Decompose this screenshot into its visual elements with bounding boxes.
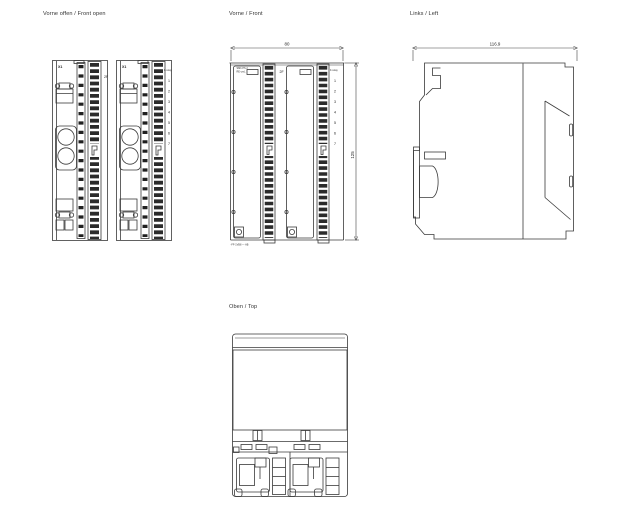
top-view-title: Oben / Top: [229, 304, 257, 310]
svg-text:2: 2: [334, 90, 336, 94]
height-dimension-label: 125: [350, 151, 355, 159]
svg-text:6: 6: [168, 132, 170, 136]
svg-text:1: 1: [334, 79, 336, 83]
vent-slot: [570, 124, 573, 136]
side-profile: [414, 63, 574, 239]
terminal-header: F-relay: [330, 69, 339, 72]
module2-connector-label: X1: [122, 65, 126, 69]
front-open-view-drawing: X1 X1 2F F-relay 1 2 3 4 5 6 7: [48, 56, 198, 246]
mounting-hook: [426, 68, 441, 95]
top-view-drawing: [228, 328, 353, 502]
vent-slot: [570, 176, 573, 187]
svg-text:7: 7: [168, 142, 170, 146]
top-view-body: [233, 334, 348, 497]
left-view-title: Links / Left: [410, 11, 438, 17]
width-dimension-label: 80: [285, 42, 290, 47]
svg-text:6: 6: [334, 132, 336, 136]
depth-dimension-label: 116.9: [490, 42, 501, 47]
svg-text:4: 4: [168, 111, 170, 115]
svg-text:4: 4: [334, 111, 336, 115]
height-dimension: 125: [345, 63, 359, 240]
latch-marks: [253, 431, 310, 441]
front-view-drawing: 80 125 SMb PS 2 RE-cmL 2F -FF-1VB8 — AB …: [225, 38, 365, 250]
terminal-header: F-relay: [164, 69, 173, 72]
svg-text:3: 3: [334, 100, 336, 104]
svg-text:5: 5: [168, 121, 170, 125]
ventilation-grid: [233, 350, 347, 430]
door-label-line2: RE-cmL: [237, 70, 247, 73]
svg-text:1: 1: [168, 79, 170, 83]
strip-mark-label: 2F: [280, 70, 285, 74]
width-dimension: 80: [231, 42, 343, 62]
middle-band: [233, 442, 348, 454]
svg-text:5: 5: [334, 121, 336, 125]
left-view-drawing: 116.9: [405, 38, 585, 250]
svg-text:2: 2: [168, 90, 170, 94]
svg-text:7: 7: [334, 142, 336, 146]
module1-connector-label: X1: [58, 65, 62, 69]
order-number-label: -FF-1VB8 — AB: [231, 244, 249, 247]
svg-text:3: 3: [168, 100, 170, 104]
terminal-number-column: F-relay 1 2 3 4 5 6 7: [330, 69, 339, 146]
depth-dimension: 116.9: [413, 42, 577, 62]
bus-connector: [414, 147, 446, 218]
strip-mark-label: 2F: [104, 75, 109, 79]
technical-drawing-page: { "page": { "background": "#ffffff", "li…: [0, 0, 640, 512]
front-view-title: Vorne / Front: [229, 11, 263, 17]
front-open-view-title: Vorne offen / Front open: [43, 11, 106, 17]
